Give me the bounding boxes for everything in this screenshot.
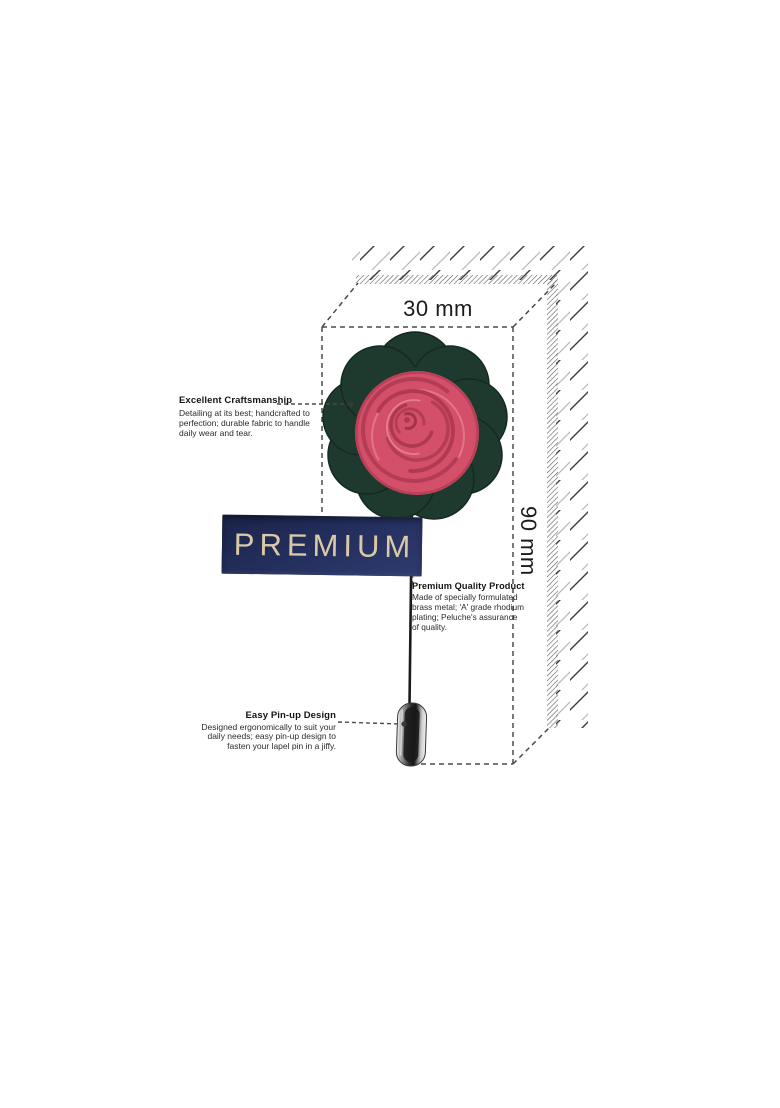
callout-title: Excellent Craftsmanship — [179, 396, 349, 406]
premium-ribbon: PREMIUM — [222, 515, 423, 577]
flower-illustration — [323, 332, 507, 519]
height-dimension-label: 90 mm — [515, 506, 541, 576]
pin-clasp — [396, 703, 427, 767]
callout-easy-pin-up-design: Easy Pin-up Design Designed ergonomicall… — [176, 711, 336, 751]
callout-body: Made of specially formulated brass metal… — [412, 593, 562, 632]
pinup-connector — [338, 722, 400, 724]
lapel-pin-infographic: 30 mm 90 mm PREMIUM Excellent Craftsmans… — [0, 0, 780, 1108]
pinup-connector-dot — [401, 721, 406, 726]
callout-title: Premium Quality Product — [412, 582, 562, 591]
callout-body: Detailing at its best; handcrafted to pe… — [179, 408, 349, 438]
callout-body: Designed ergonomically to suit your dail… — [176, 723, 336, 752]
craftsmanship-connector-dot — [349, 402, 354, 407]
callout-excellent-craftsmanship: Excellent Craftsmanship Detailing at its… — [179, 396, 349, 438]
width-dimension-label: 30 mm — [403, 296, 473, 322]
premium-ribbon-label: PREMIUM — [229, 526, 416, 565]
callout-premium-quality-product: Premium Quality Product Made of speciall… — [412, 582, 562, 632]
callout-title: Easy Pin-up Design — [176, 711, 336, 721]
